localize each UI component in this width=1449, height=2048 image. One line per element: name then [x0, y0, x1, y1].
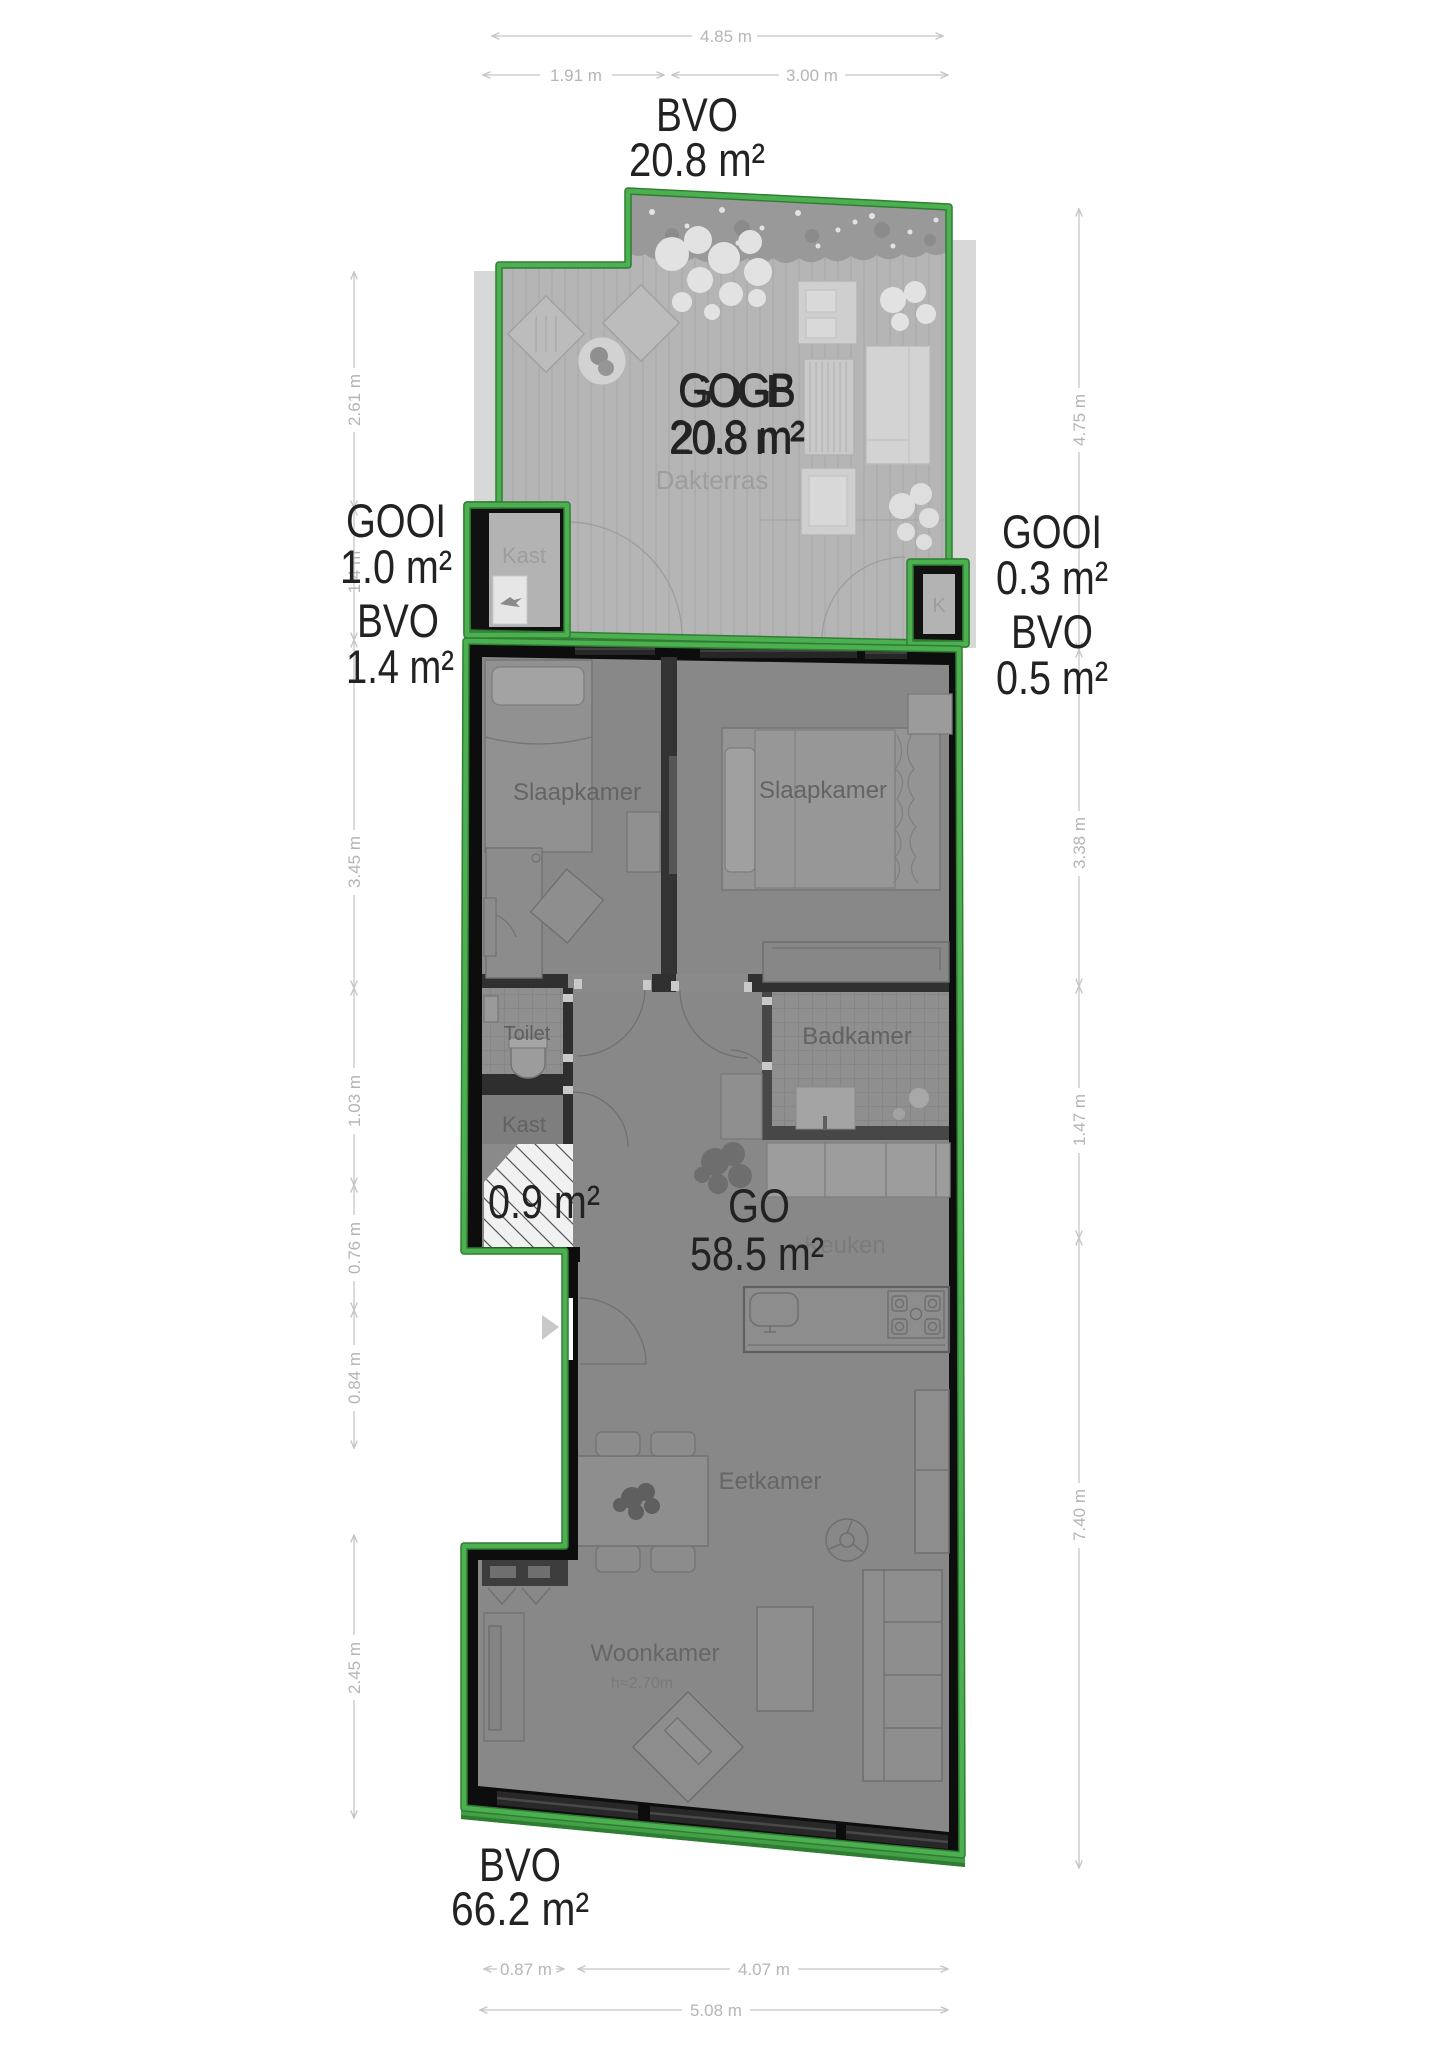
svg-text:h≈2.70m: h≈2.70m	[611, 1675, 673, 1692]
svg-text:0.84 m: 0.84 m	[345, 1352, 364, 1404]
svg-text:1.0 m²: 1.0 m²	[340, 540, 452, 593]
svg-text:0.5 m²: 0.5 m²	[996, 651, 1108, 704]
svg-text:2.61 m: 2.61 m	[345, 374, 364, 426]
svg-text:Woonkamer: Woonkamer	[591, 1640, 720, 1667]
svg-text:K: K	[932, 595, 946, 617]
svg-text:Slaapkamer: Slaapkamer	[759, 777, 887, 804]
svg-text:3.00 m: 3.00 m	[786, 66, 838, 85]
svg-text:Kast: Kast	[502, 1112, 546, 1137]
svg-text:3.45 m: 3.45 m	[345, 836, 364, 888]
svg-text:Eetkamer: Eetkamer	[719, 1468, 822, 1495]
svg-text:Slaapkamer: Slaapkamer	[513, 779, 641, 806]
svg-text:4.75 m: 4.75 m	[1070, 394, 1089, 446]
svg-text:1.4 m²: 1.4 m²	[346, 640, 454, 693]
svg-text:2.45 m: 2.45 m	[345, 1642, 364, 1694]
svg-text:GOGB: GOGB	[678, 363, 796, 416]
svg-text:0.76 m: 0.76 m	[345, 1222, 364, 1274]
svg-text:66.2 m²: 66.2 m²	[451, 1882, 589, 1935]
svg-text:1.91 m: 1.91 m	[550, 66, 602, 85]
svg-text:1.03 m: 1.03 m	[345, 1075, 364, 1127]
svg-text:0.3 m²: 0.3 m²	[996, 551, 1108, 604]
svg-text:Toilet: Toilet	[504, 1023, 551, 1045]
svg-text:20.8 m²: 20.8 m²	[669, 410, 805, 463]
svg-text:0.87 m: 0.87 m	[500, 1960, 552, 1979]
svg-text:7.40 m: 7.40 m	[1070, 1489, 1089, 1541]
svg-text:4.85 m: 4.85 m	[700, 27, 752, 46]
svg-text:20.8 m²: 20.8 m²	[629, 133, 765, 186]
svg-text:5.08 m: 5.08 m	[690, 2001, 742, 2020]
svg-text:58.5 m²: 58.5 m²	[690, 1227, 824, 1280]
svg-text:4.07 m: 4.07 m	[738, 1960, 790, 1979]
svg-text:1.47 m: 1.47 m	[1070, 1094, 1089, 1146]
svg-text:Dakterras: Dakterras	[656, 465, 769, 495]
svg-text:Kast: Kast	[502, 543, 546, 568]
svg-text:3.38 m: 3.38 m	[1070, 817, 1089, 869]
svg-text:0.9 m²: 0.9 m²	[488, 1175, 600, 1228]
svg-text:GO: GO	[728, 1179, 790, 1232]
svg-text:Badkamer: Badkamer	[802, 1023, 911, 1050]
